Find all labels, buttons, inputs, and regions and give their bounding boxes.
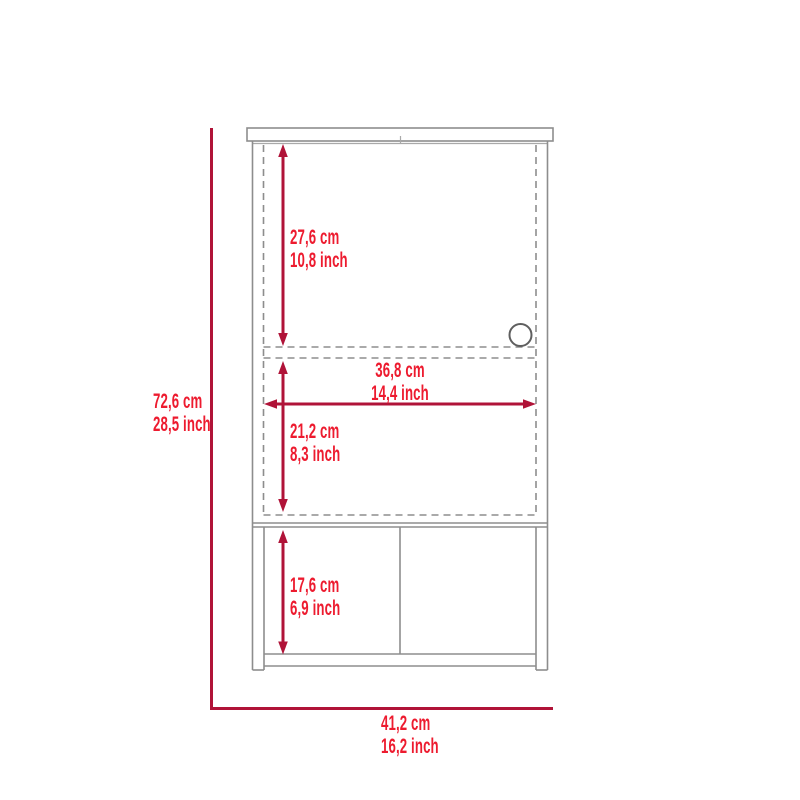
dimension-inch: 16,2 inch	[381, 735, 439, 758]
dimension-label-middle-section: 21,2 cm 8,3 inch	[290, 420, 340, 466]
dimension-graphics	[212, 128, 554, 709]
dimension-label-bottom-section: 17,6 cm 6,9 inch	[290, 574, 340, 620]
dimension-label-total-height: 72,6 cm 28,5 inch	[153, 390, 211, 436]
dimension-inch: 6,9 inch	[290, 597, 340, 620]
dimension-cm: 21,2 cm	[290, 420, 340, 443]
dimension-diagram: 72,6 cm 28,5 inch 27,6 cm 10,8 inch 36,8…	[0, 0, 800, 800]
dimension-label-inner-width: 36,8 cm 14,4 inch	[343, 359, 456, 405]
dimension-cm: 27,6 cm	[290, 226, 348, 249]
dimension-inch: 14,4 inch	[343, 382, 456, 405]
dimension-arrow-bottom-section	[278, 530, 288, 655]
door-handle-icon	[510, 324, 532, 346]
dimension-inch: 28,5 inch	[153, 413, 211, 436]
overall-extent-line	[212, 128, 554, 709]
dimension-cm: 17,6 cm	[290, 574, 340, 597]
dimension-cm: 36,8 cm	[343, 359, 456, 382]
dimension-cm: 41,2 cm	[381, 712, 439, 735]
dimension-arrow-top-section	[278, 144, 288, 346]
dimension-cm: 72,6 cm	[153, 390, 211, 413]
dimension-label-total-width: 41,2 cm 16,2 inch	[381, 712, 439, 758]
dimension-arrow-middle-section	[278, 361, 288, 512]
dimension-label-top-section: 27,6 cm 10,8 inch	[290, 226, 348, 272]
dimension-inch: 10,8 inch	[290, 249, 348, 272]
dimension-inch: 8,3 inch	[290, 443, 340, 466]
